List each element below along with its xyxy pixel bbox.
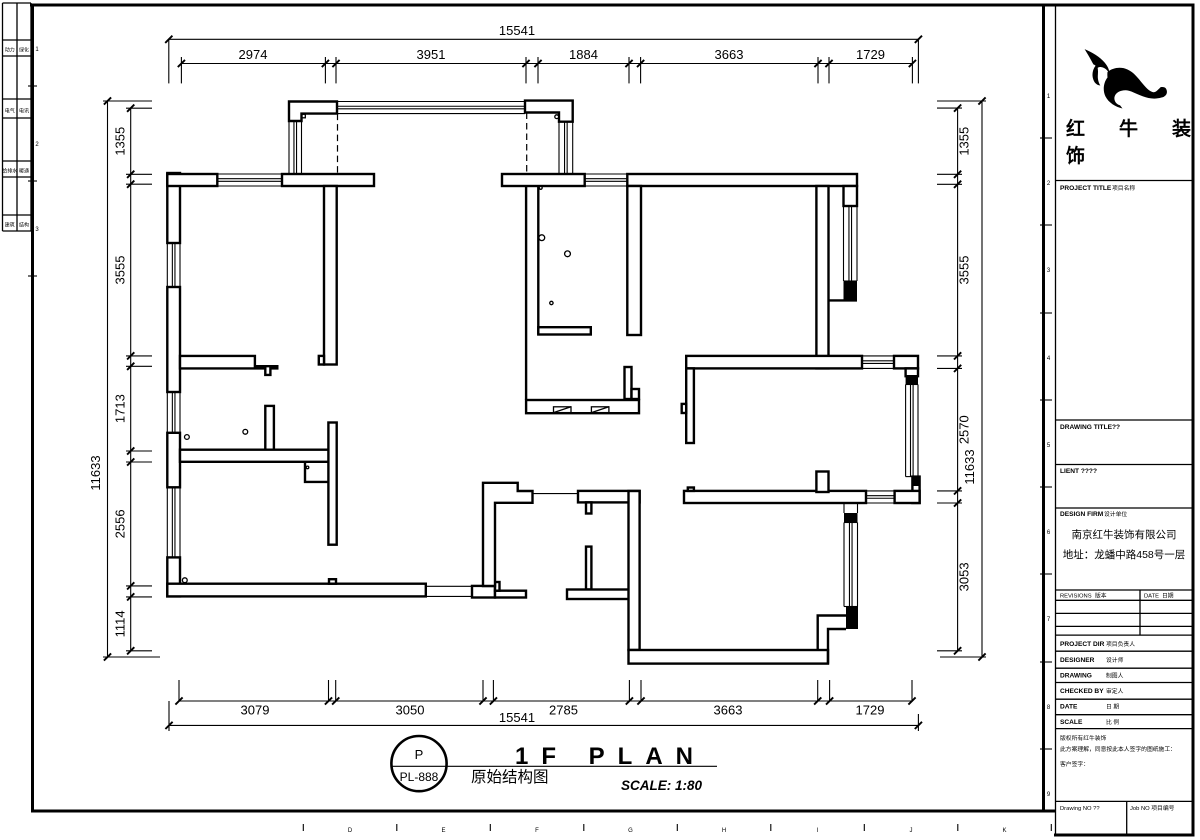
svg-text:版本: 版本 [1095,592,1107,600]
svg-text:2570: 2570 [957,415,972,444]
svg-text:3555: 3555 [957,256,972,285]
svg-text:比 例: 比 例 [1106,718,1119,726]
svg-text:项目负责人: 项目负责人 [1106,640,1135,648]
svg-text:项目名称: 项目名称 [1112,184,1135,192]
svg-text:地址：龙蟠中路458号一层: 地址：龙蟠中路458号一层 [1063,548,1186,561]
svg-text:日 期: 日 期 [1106,704,1119,711]
svg-text:3663: 3663 [715,47,744,62]
svg-text:J: J [910,828,913,834]
svg-text:Drawing NO ??: Drawing NO ?? [1060,806,1100,812]
svg-text:G: G [628,828,633,834]
svg-text:1355: 1355 [957,127,972,156]
svg-text:1114: 1114 [113,610,128,637]
svg-text:3663: 3663 [714,703,743,718]
svg-text:SCALE: SCALE [1060,719,1083,726]
svg-text:3951: 3951 [417,47,446,62]
svg-text:电气: 电气 [5,108,15,115]
svg-text:设计单位: 设计单位 [1104,510,1127,518]
svg-text:DRAWING: DRAWING [1060,673,1092,680]
svg-text:建筑: 建筑 [5,222,15,229]
svg-text:饰: 饰 [1066,144,1085,167]
svg-text:DATE: DATE [1144,594,1159,600]
svg-text:P: P [415,747,424,762]
svg-text:版权所有红牛装饰: 版权所有红牛装饰 [1060,734,1107,742]
svg-text:PROJECT DIR: PROJECT DIR [1060,641,1105,648]
svg-text:PL-888: PL-888 [400,770,439,784]
svg-text:2556: 2556 [113,509,128,538]
svg-text:15541: 15541 [499,710,535,725]
svg-text:客户签字：: 客户签字： [1060,760,1089,768]
svg-text:1729: 1729 [856,703,885,718]
svg-text:11633: 11633 [962,449,977,484]
svg-text:2785: 2785 [549,703,578,718]
svg-text:结构: 结构 [19,222,29,229]
svg-text:日期: 日期 [1162,593,1174,600]
svg-text:1729: 1729 [856,47,885,62]
svg-text:牛: 牛 [1119,117,1138,140]
svg-text:给排水: 给排水 [2,168,17,175]
svg-text:D: D [348,828,353,834]
svg-text:DESIGNER: DESIGNER [1060,657,1095,664]
svg-text:15541: 15541 [499,23,535,38]
svg-text:审定人: 审定人 [1106,687,1124,695]
svg-text:F: F [535,828,539,834]
svg-text:2974: 2974 [239,47,268,62]
svg-text:此方案理解，同意按此本人签字的图纸施工：: 此方案理解，同意按此本人签字的图纸施工： [1060,745,1176,753]
svg-text:暖通: 暖通 [19,168,29,175]
svg-text:动力: 动力 [5,47,15,54]
svg-text:DATE: DATE [1060,704,1078,711]
svg-text:装: 装 [1171,117,1191,140]
svg-text:Job NO 项目编号: Job NO 项目编号 [1130,804,1175,812]
svg-text:CHECKED BY: CHECKED BY [1060,688,1104,695]
svg-text:制图人: 制图人 [1106,672,1124,680]
svg-text:1355: 1355 [113,127,128,156]
svg-text:红: 红 [1066,117,1085,140]
svg-text:1713: 1713 [113,394,128,423]
svg-text:3079: 3079 [241,703,270,718]
svg-text:PROJECT TITLE: PROJECT TITLE [1060,185,1112,192]
svg-text:H: H [722,828,726,834]
svg-text:南京红牛装饰有限公司: 南京红牛装饰有限公司 [1072,528,1177,541]
svg-text:1884: 1884 [569,47,598,62]
svg-text:3555: 3555 [113,256,128,285]
svg-text:1F PLAN: 1F PLAN [515,743,706,770]
svg-text:DESIGN FIRM: DESIGN FIRM [1060,511,1104,518]
svg-text:REVISIONS: REVISIONS [1060,594,1092,600]
svg-text:设计师: 设计师 [1106,656,1124,664]
svg-text:DRAWING TITLE??: DRAWING TITLE?? [1060,424,1120,431]
svg-text:绿化: 绿化 [19,47,29,54]
svg-text:SCALE: 1:80: SCALE: 1:80 [621,778,703,793]
svg-text:3053: 3053 [957,562,972,591]
svg-text:原始结构图: 原始结构图 [471,768,549,786]
svg-text:电讯: 电讯 [19,108,29,115]
svg-text:E: E [441,828,445,834]
svg-text:K: K [1002,828,1006,834]
svg-text:3050: 3050 [396,703,425,718]
svg-text:11633: 11633 [88,455,103,490]
svg-text:LIENT ????: LIENT ???? [1060,468,1097,475]
